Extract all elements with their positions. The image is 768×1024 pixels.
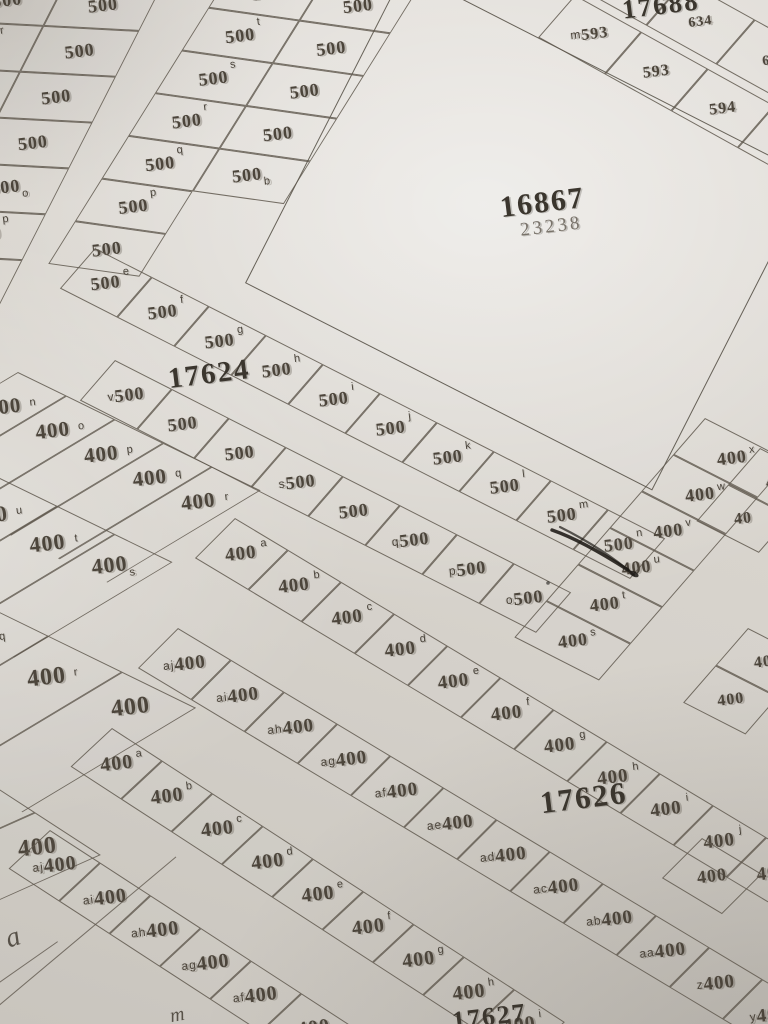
plot-size: ae400	[426, 810, 475, 838]
plot-letter: n	[29, 396, 37, 409]
plot-size-number: 400	[386, 778, 420, 803]
plot-size: 500	[171, 109, 203, 133]
plot-size-number: 400	[0, 500, 9, 529]
plot-size-number: 593	[581, 23, 610, 43]
plot-size: 400	[588, 592, 620, 616]
plot-letter: r	[224, 491, 229, 503]
plot-size-number: 400	[600, 906, 634, 931]
plot-letter: f	[525, 696, 530, 708]
plot-size: 500	[489, 474, 521, 498]
plot-size-number: 500	[224, 23, 256, 47]
plot-size: 400	[109, 692, 151, 724]
plot-letter: q	[0, 630, 6, 643]
plot-size-number: 400	[225, 541, 259, 566]
plot-size: 400	[34, 416, 71, 445]
plot-size: 400	[652, 519, 684, 543]
plot-size-number: 500	[167, 412, 199, 436]
plot-size-number: 400	[131, 463, 168, 491]
plot-size-number: 594	[708, 98, 737, 118]
plot-size-number: 500	[204, 329, 236, 353]
plot-size: 500	[0, 222, 2, 246]
plot-size: 400	[350, 914, 386, 941]
plot-size: 500	[63, 39, 95, 63]
plot-size-number: 400	[350, 914, 385, 940]
plot-size-number: 400	[109, 692, 151, 723]
plot-size: m593	[570, 23, 610, 45]
plot-letter: h	[293, 352, 301, 365]
handwritten-mark: m	[168, 1003, 186, 1024]
plot-size-number: 400	[653, 938, 687, 963]
plot-size: 500	[224, 23, 256, 47]
plot-size-number: 400	[683, 482, 715, 506]
plot-size-number: 400	[149, 783, 184, 809]
plot-cell: 500o	[0, 163, 69, 214]
plot-size: ah400	[266, 714, 315, 742]
plot-size: 400	[28, 528, 67, 558]
plot-letter: u	[15, 504, 23, 517]
plot-size: 500	[144, 151, 176, 175]
handwritten-mark: a	[1, 921, 24, 956]
plot-letter: t	[256, 16, 261, 28]
plot-size: 400	[384, 637, 418, 663]
plot-letter: d	[419, 633, 427, 646]
plot-size: s500	[277, 469, 316, 494]
plot-size: ag400	[180, 949, 231, 978]
plot-size-number: 500	[546, 503, 578, 527]
plot-size: ag400	[319, 746, 368, 774]
plot-letter: v	[685, 516, 692, 529]
plot-size: 400	[650, 797, 684, 823]
plot-letter: b	[313, 569, 321, 582]
plot-size: 400	[99, 750, 135, 777]
plot-size: ai400	[215, 682, 260, 709]
plot-size-number: 400	[179, 487, 216, 515]
plot-cell: 500	[0, 72, 116, 123]
plot-size: 400	[331, 605, 365, 631]
plot-size: 500	[315, 36, 347, 60]
plot-letter: f	[386, 910, 391, 922]
plot-size: 500b	[231, 162, 272, 191]
plot-size-number: 500	[0, 175, 21, 199]
plot-letter: e	[472, 665, 480, 678]
block-number-label: 17626	[538, 775, 629, 821]
plot-size-number: 400	[650, 797, 684, 822]
plot-size-number: 400	[490, 701, 524, 726]
plot-size: ai400	[81, 884, 128, 912]
plot-size: v500	[106, 382, 145, 407]
plot-size-number: 500	[147, 300, 179, 324]
plot-size-number: 400	[620, 555, 652, 579]
plot-size-number: 400	[90, 550, 129, 579]
plot-size: 500	[17, 131, 49, 155]
plot-size: 500	[432, 445, 464, 469]
plot-size-number: 400	[281, 714, 315, 739]
plot-size-number: 500	[144, 151, 176, 175]
plot-size-number: 400	[715, 446, 747, 470]
plot-size-number: 500	[87, 0, 119, 17]
plot-size: 400	[0, 500, 9, 530]
plot-size: 500	[262, 121, 294, 145]
plot-size-number: 500	[0, 222, 2, 246]
plot-letter: q	[174, 467, 182, 480]
plot-letter: c	[366, 601, 373, 614]
plot-size-number: 400	[82, 440, 119, 468]
plot-size-number: 400	[696, 864, 728, 888]
plot-size-number: 500	[342, 0, 374, 17]
plot-size: af400	[374, 778, 420, 805]
plot-size-number: 400	[145, 917, 180, 943]
plot-size-number: 400	[34, 416, 71, 444]
plot-letter: g	[236, 323, 244, 336]
plot-size-number: 500	[289, 79, 321, 103]
plot-letter: j	[407, 410, 411, 422]
plot-size-number: 500	[40, 85, 72, 109]
plot-letter: i	[537, 1008, 541, 1020]
plot-size-number: 400	[331, 605, 365, 630]
plot-letter: i	[685, 792, 689, 804]
plot-letter: s	[129, 566, 137, 579]
plot-size-number: 400	[756, 1002, 768, 1024]
plot-size-number: 400	[296, 1015, 331, 1024]
plot-size-number: 500	[118, 194, 150, 218]
plot-size: 500	[204, 329, 236, 353]
plot-size: 500	[251, 0, 283, 5]
plot-size: 400	[543, 733, 577, 759]
plot-size-number: 593	[642, 61, 671, 81]
plot-size-number: 400	[652, 519, 684, 543]
plot-size: 500	[87, 0, 119, 18]
plot-size-number: 400	[28, 528, 67, 557]
plot-size: 594	[708, 98, 737, 119]
plot-size-number: 400	[0, 392, 22, 420]
plot-size: 400	[25, 662, 67, 694]
plot-size: 400	[82, 440, 119, 469]
plot-size-number: 400	[244, 982, 279, 1008]
plot-size: 400	[131, 463, 168, 492]
plot-size-number: 500	[224, 441, 256, 465]
plot-size-number: 500	[198, 66, 230, 90]
plot-letter: t	[621, 589, 626, 601]
plot-size: z400	[696, 970, 737, 997]
plot-size-number: 400	[437, 669, 471, 694]
plot-size: 400	[556, 628, 588, 652]
plot-letter: i	[350, 381, 354, 393]
plot-size: 500	[224, 441, 256, 465]
plot-size-number: 400	[199, 816, 234, 842]
plot-size-number: 400	[99, 750, 134, 776]
plot-size-number: 500	[338, 499, 370, 523]
plot-letter: f	[179, 294, 184, 306]
plot-size-number: 400	[441, 810, 475, 835]
plot-size-number: 500	[251, 0, 283, 4]
plot-size-number: 500	[90, 271, 122, 295]
plot-size: 400	[225, 541, 259, 567]
plot-size: 400	[179, 487, 216, 516]
plot-size: 400	[149, 783, 185, 810]
plot-size-number: 400	[278, 573, 312, 598]
plot-size-number: 500	[63, 39, 95, 63]
plot-size: af400	[232, 982, 279, 1010]
plot-size-number: 500	[231, 163, 263, 187]
plot-size: ad400	[479, 842, 528, 870]
plot-size-number: 500	[113, 382, 145, 406]
plot-letter: k	[464, 440, 471, 453]
plot-letter: e	[336, 878, 344, 891]
plot-size-number: 400	[25, 662, 67, 693]
plot-cell: p500	[0, 209, 46, 260]
plot-letter: m	[578, 498, 589, 511]
plot-size-number: 400	[556, 628, 588, 652]
plot-size-number: 400	[702, 970, 736, 995]
plot-letter: r	[0, 25, 4, 37]
plot-size: 400	[437, 669, 471, 695]
plot-size: 593	[642, 61, 671, 82]
plot-size: aa400	[638, 938, 687, 966]
plot-size-number: 500	[318, 387, 350, 411]
plot-size-number: 500	[17, 131, 49, 155]
plot-letter: u	[653, 553, 661, 566]
plot-size-number: 500	[315, 36, 347, 60]
plot-letter: t	[74, 533, 79, 545]
plot-size-number: 500	[489, 474, 521, 498]
plot-letter: r	[203, 101, 208, 113]
plot-size: 400	[401, 946, 437, 973]
plot-letter: q	[176, 144, 184, 157]
plot-size-number: 500	[171, 109, 203, 133]
plot-size: 500	[338, 499, 370, 523]
plot-size: aj400	[162, 650, 207, 677]
plot-size: 40	[753, 653, 768, 673]
plot-size-number: 400	[93, 884, 128, 910]
plot-letter: b	[263, 175, 272, 188]
plot-letter: s	[230, 58, 237, 71]
plot-letter: d	[286, 845, 294, 858]
plot-size-number: 400	[547, 874, 581, 899]
map-photo: 500500s500500r500500500q500500500b500500…	[0, 0, 768, 1024]
plot-size: 500	[546, 503, 578, 527]
plot-size: 63	[762, 52, 768, 70]
plot-letter: s	[589, 626, 596, 639]
plot-letter: j	[738, 823, 742, 835]
plot-letter: l	[522, 468, 526, 480]
plot-size-number: 400	[335, 746, 369, 771]
plot-size: p500	[448, 556, 488, 581]
plot-size: 500	[40, 85, 72, 109]
plot-size-number: 500	[432, 445, 464, 469]
plot-size-number: 500	[261, 358, 293, 382]
plot-size: 400	[0, 392, 23, 421]
plot-size-number: 63	[762, 52, 768, 69]
plot-letter: a	[259, 537, 267, 550]
plot-size-number: 400	[384, 637, 418, 662]
plot-size: 400	[278, 573, 312, 599]
block-number-label: 17624	[166, 353, 252, 396]
plot-size-number: 400	[716, 689, 745, 709]
plot-size-number: 400	[173, 650, 207, 675]
plot-letter: g	[578, 728, 586, 741]
plot-size: 400	[250, 848, 286, 875]
plot-size-number: 400	[42, 852, 77, 878]
plot-size-number: 500	[0, 0, 23, 12]
plot-size: ae400	[281, 1015, 332, 1024]
plot-size: 400	[696, 864, 728, 888]
plot-letter: r	[73, 666, 78, 678]
plot-size-number: 400	[195, 949, 230, 975]
plot-size: 500	[318, 387, 350, 411]
plot-size-number: 500	[284, 469, 316, 493]
plot-size: 40	[733, 509, 753, 529]
plot-size: 500o	[0, 174, 30, 203]
plot-size: 500	[90, 271, 122, 295]
plot-letter: h	[487, 976, 495, 989]
plot-size: ah400	[130, 917, 181, 946]
plot-size: 400	[199, 816, 235, 843]
plot-size-number: 500	[399, 527, 431, 551]
plot-size-number: 40	[733, 509, 753, 528]
plot-letter: p	[126, 443, 134, 456]
plot-size-number: 400	[451, 979, 486, 1005]
plot-size: 400s	[90, 549, 137, 583]
plot-size: 500	[147, 300, 179, 324]
plot-size: 400	[300, 881, 336, 908]
plot-size: 500	[198, 66, 230, 90]
plot-letter: e	[122, 265, 130, 278]
plot-size-number: 400	[494, 842, 528, 867]
plot-size-number: 40	[753, 653, 768, 672]
plot-size-number: 400	[401, 946, 436, 972]
plot-letter: g	[436, 943, 444, 956]
plot-size: q500	[391, 527, 431, 552]
plot-size: 400	[490, 701, 524, 727]
plot-letter: o	[77, 420, 85, 433]
plot-cell: 500	[0, 255, 22, 306]
plot-size-number: 400	[226, 682, 260, 707]
plot-size-number: 500	[456, 556, 488, 580]
plot-letter: p	[1, 213, 9, 226]
plot-size: 500	[375, 416, 407, 440]
plot-size: y400	[749, 1002, 768, 1024]
plot-size: 400	[716, 689, 745, 710]
plot-size: 500	[289, 79, 321, 103]
plot-size: 500	[0, 0, 23, 13]
plot-size-number: 400	[543, 733, 577, 758]
plot-size: 500	[342, 0, 374, 18]
plot-size-number: 500	[262, 121, 294, 145]
plot-cell: 500	[0, 118, 93, 169]
plot-size: 500	[167, 412, 199, 436]
plot-size: 500	[261, 358, 293, 382]
plot-letter: c	[235, 812, 242, 825]
plot-size: 400	[620, 555, 652, 579]
plot-letter: b	[185, 780, 193, 793]
plot-letter: o	[21, 187, 30, 200]
plot-size: ab400	[585, 906, 634, 934]
plot-size-number: 400	[250, 848, 285, 874]
plot-letter: p	[149, 187, 157, 200]
plot-size: aj400	[31, 852, 78, 880]
plot-size: ac400	[532, 874, 581, 901]
plot-size: 500	[118, 194, 150, 218]
plot-size-number: 500	[375, 416, 407, 440]
plot-size-number: 400	[588, 592, 620, 616]
plot-size-number: 400	[300, 881, 335, 907]
plot-letter: a	[135, 747, 143, 760]
plot-size-number: 500	[513, 585, 545, 609]
plot-letter: h	[631, 760, 639, 773]
